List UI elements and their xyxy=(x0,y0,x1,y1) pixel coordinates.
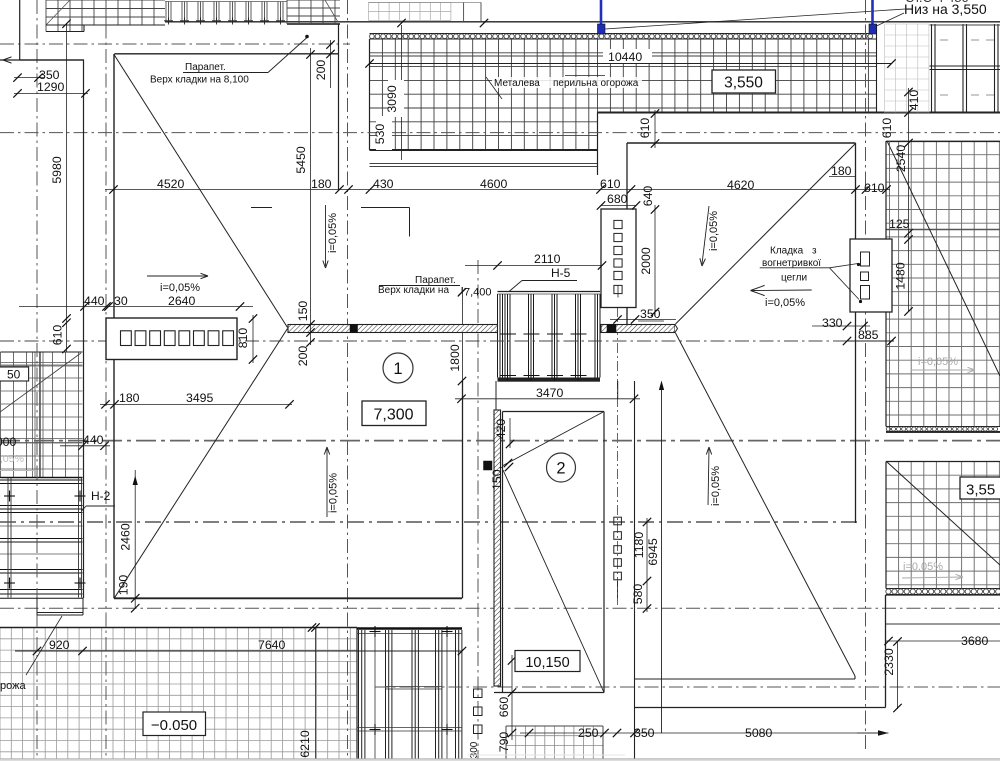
svg-text:4600: 4600 xyxy=(480,177,508,191)
svg-text:885: 885 xyxy=(858,328,879,342)
svg-text:Металева: Металева xyxy=(494,78,540,89)
svg-text:i=0,05%: i=0,05% xyxy=(903,561,943,573)
svg-text:3680: 3680 xyxy=(961,634,989,648)
svg-text:440: 440 xyxy=(83,433,104,447)
svg-text:Парапет.: Парапет. xyxy=(185,62,226,73)
svg-text:610: 610 xyxy=(864,181,885,195)
svg-text:30: 30 xyxy=(114,294,128,308)
svg-text:1: 1 xyxy=(393,360,402,378)
svg-text:i=0,05%: i=0,05% xyxy=(710,466,722,506)
svg-text:огорожа: огорожа xyxy=(601,78,639,89)
svg-text:640: 640 xyxy=(641,186,655,207)
svg-text:рожа: рожа xyxy=(0,680,26,692)
svg-text:Н-5: Н-5 xyxy=(551,266,571,280)
svg-text:50: 50 xyxy=(7,368,21,382)
svg-text:,05%: ,05% xyxy=(0,453,24,465)
svg-text:790: 790 xyxy=(497,732,511,753)
svg-text:2540: 2540 xyxy=(894,145,908,173)
svg-text:цегли: цегли xyxy=(781,273,807,284)
svg-text:3,550: 3,550 xyxy=(724,75,763,92)
svg-text:1180: 1180 xyxy=(632,532,646,559)
svg-text:7,400: 7,400 xyxy=(464,287,492,299)
svg-text:i=0,05%: i=0,05% xyxy=(328,473,340,513)
svg-text:2640: 2640 xyxy=(168,294,196,308)
svg-text:440: 440 xyxy=(84,294,105,308)
svg-text:7,300: 7,300 xyxy=(373,407,413,424)
svg-text:1480: 1480 xyxy=(894,262,908,290)
svg-text:410: 410 xyxy=(907,90,921,111)
svg-text:Кладка: Кладка xyxy=(770,246,804,257)
svg-text:680: 680 xyxy=(607,192,628,206)
svg-text:530: 530 xyxy=(373,124,387,145)
svg-text:1800: 1800 xyxy=(448,344,462,372)
svg-text:125: 125 xyxy=(889,217,910,231)
svg-text:920: 920 xyxy=(49,638,70,652)
svg-text:250: 250 xyxy=(578,726,599,740)
svg-text:2: 2 xyxy=(556,460,565,478)
svg-text:150,: 150, xyxy=(490,466,504,490)
svg-text:2110: 2110 xyxy=(534,252,561,266)
svg-text:10,150: 10,150 xyxy=(525,655,569,671)
svg-text:190: 190 xyxy=(117,575,131,596)
svg-text:5080: 5080 xyxy=(745,726,773,740)
svg-text:вогнетривкої: вогнетривкої xyxy=(762,258,821,269)
svg-text:610: 610 xyxy=(880,118,894,139)
svg-text:150: 150 xyxy=(296,301,310,322)
svg-text:2460: 2460 xyxy=(119,523,133,551)
svg-text:3090: 3090 xyxy=(385,85,399,113)
svg-text:1290: 1290 xyxy=(37,80,65,94)
svg-text:420: 420 xyxy=(494,419,508,440)
svg-text:300: 300 xyxy=(469,741,480,758)
svg-text:200: 200 xyxy=(296,346,310,367)
svg-text:330: 330 xyxy=(822,316,843,330)
svg-text:перильна: перильна xyxy=(553,78,598,89)
svg-text:610: 610 xyxy=(51,325,65,346)
svg-text:7640: 7640 xyxy=(258,638,286,652)
svg-text:3,55: 3,55 xyxy=(966,482,995,499)
svg-text:810: 810 xyxy=(236,328,250,349)
svg-text:5980: 5980 xyxy=(50,156,64,184)
svg-text:i=0,05%: i=0,05% xyxy=(708,211,720,251)
svg-text:350: 350 xyxy=(640,307,661,321)
svg-text:3470: 3470 xyxy=(536,386,564,400)
svg-text:3000: 3000 xyxy=(0,435,17,449)
svg-text:6945: 6945 xyxy=(646,538,660,566)
svg-text:350: 350 xyxy=(634,726,655,740)
svg-text:3495: 3495 xyxy=(186,391,214,405)
svg-text:2000: 2000 xyxy=(639,247,653,275)
svg-text:Н-2: Н-2 xyxy=(91,489,111,503)
svg-text:180: 180 xyxy=(831,164,852,178)
svg-text:i=0,05%: i=0,05% xyxy=(765,297,805,309)
svg-text:−0.050: −0.050 xyxy=(151,717,197,734)
svg-text:200: 200 xyxy=(314,60,328,81)
svg-text:610: 610 xyxy=(600,177,621,191)
svg-text:з: з xyxy=(812,246,817,257)
svg-text:6210: 6210 xyxy=(298,730,312,758)
svg-text:580: 580 xyxy=(631,584,645,605)
svg-text:i=0,05%: i=0,05% xyxy=(327,213,339,253)
svg-text:5450: 5450 xyxy=(294,146,308,174)
svg-text:2330: 2330 xyxy=(882,648,896,676)
svg-text:Верх кладки на 8,100: Верх кладки на 8,100 xyxy=(150,75,249,86)
svg-text:Ст.С-4 480: Ст.С-4 480 xyxy=(905,0,969,5)
svg-text:610: 610 xyxy=(638,118,652,139)
svg-text:180: 180 xyxy=(311,177,332,191)
svg-text:i=0,05%: i=0,05% xyxy=(160,282,200,294)
svg-text:180: 180 xyxy=(119,391,140,405)
svg-text:i=0,05%: i=0,05% xyxy=(918,356,958,368)
svg-text:4520: 4520 xyxy=(157,177,185,191)
svg-text:660: 660 xyxy=(497,697,511,718)
svg-text:10440: 10440 xyxy=(608,50,642,64)
svg-text:Верх кладки на: Верх кладки на xyxy=(378,285,449,296)
svg-text:430: 430 xyxy=(373,177,394,191)
svg-text:4620: 4620 xyxy=(727,178,755,192)
